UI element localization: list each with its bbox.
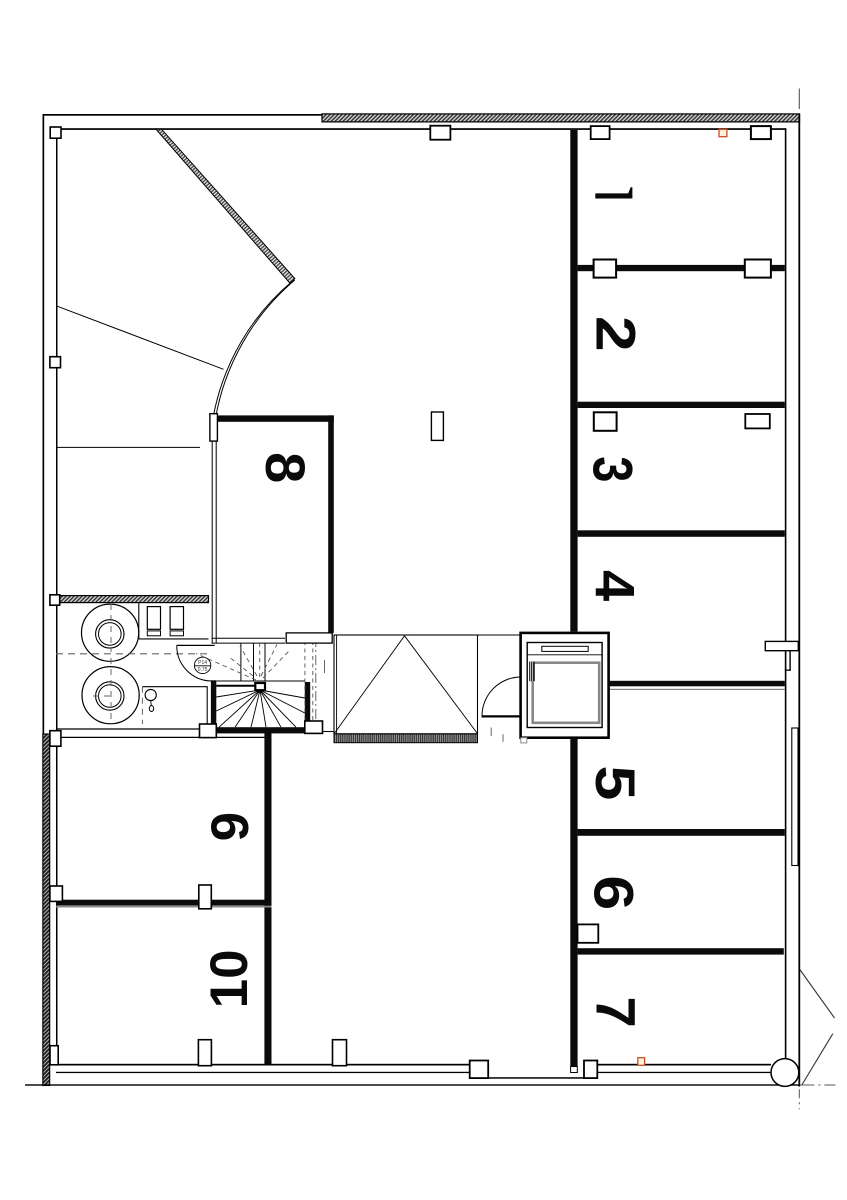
svg-text:9: 9 [201, 812, 260, 841]
svg-text:2: 2 [584, 316, 647, 352]
svg-text:P14: P14 [198, 660, 207, 666]
svg-text:6: 6 [582, 875, 645, 910]
svg-text:10: 10 [200, 949, 259, 1008]
svg-text:3: 3 [582, 456, 645, 482]
svg-text:8: 8 [254, 452, 317, 483]
svg-text:0.75: 0.75 [198, 667, 208, 673]
svg-text:4: 4 [583, 570, 646, 601]
svg-text:7: 7 [584, 997, 647, 1028]
svg-text:5: 5 [584, 766, 647, 801]
